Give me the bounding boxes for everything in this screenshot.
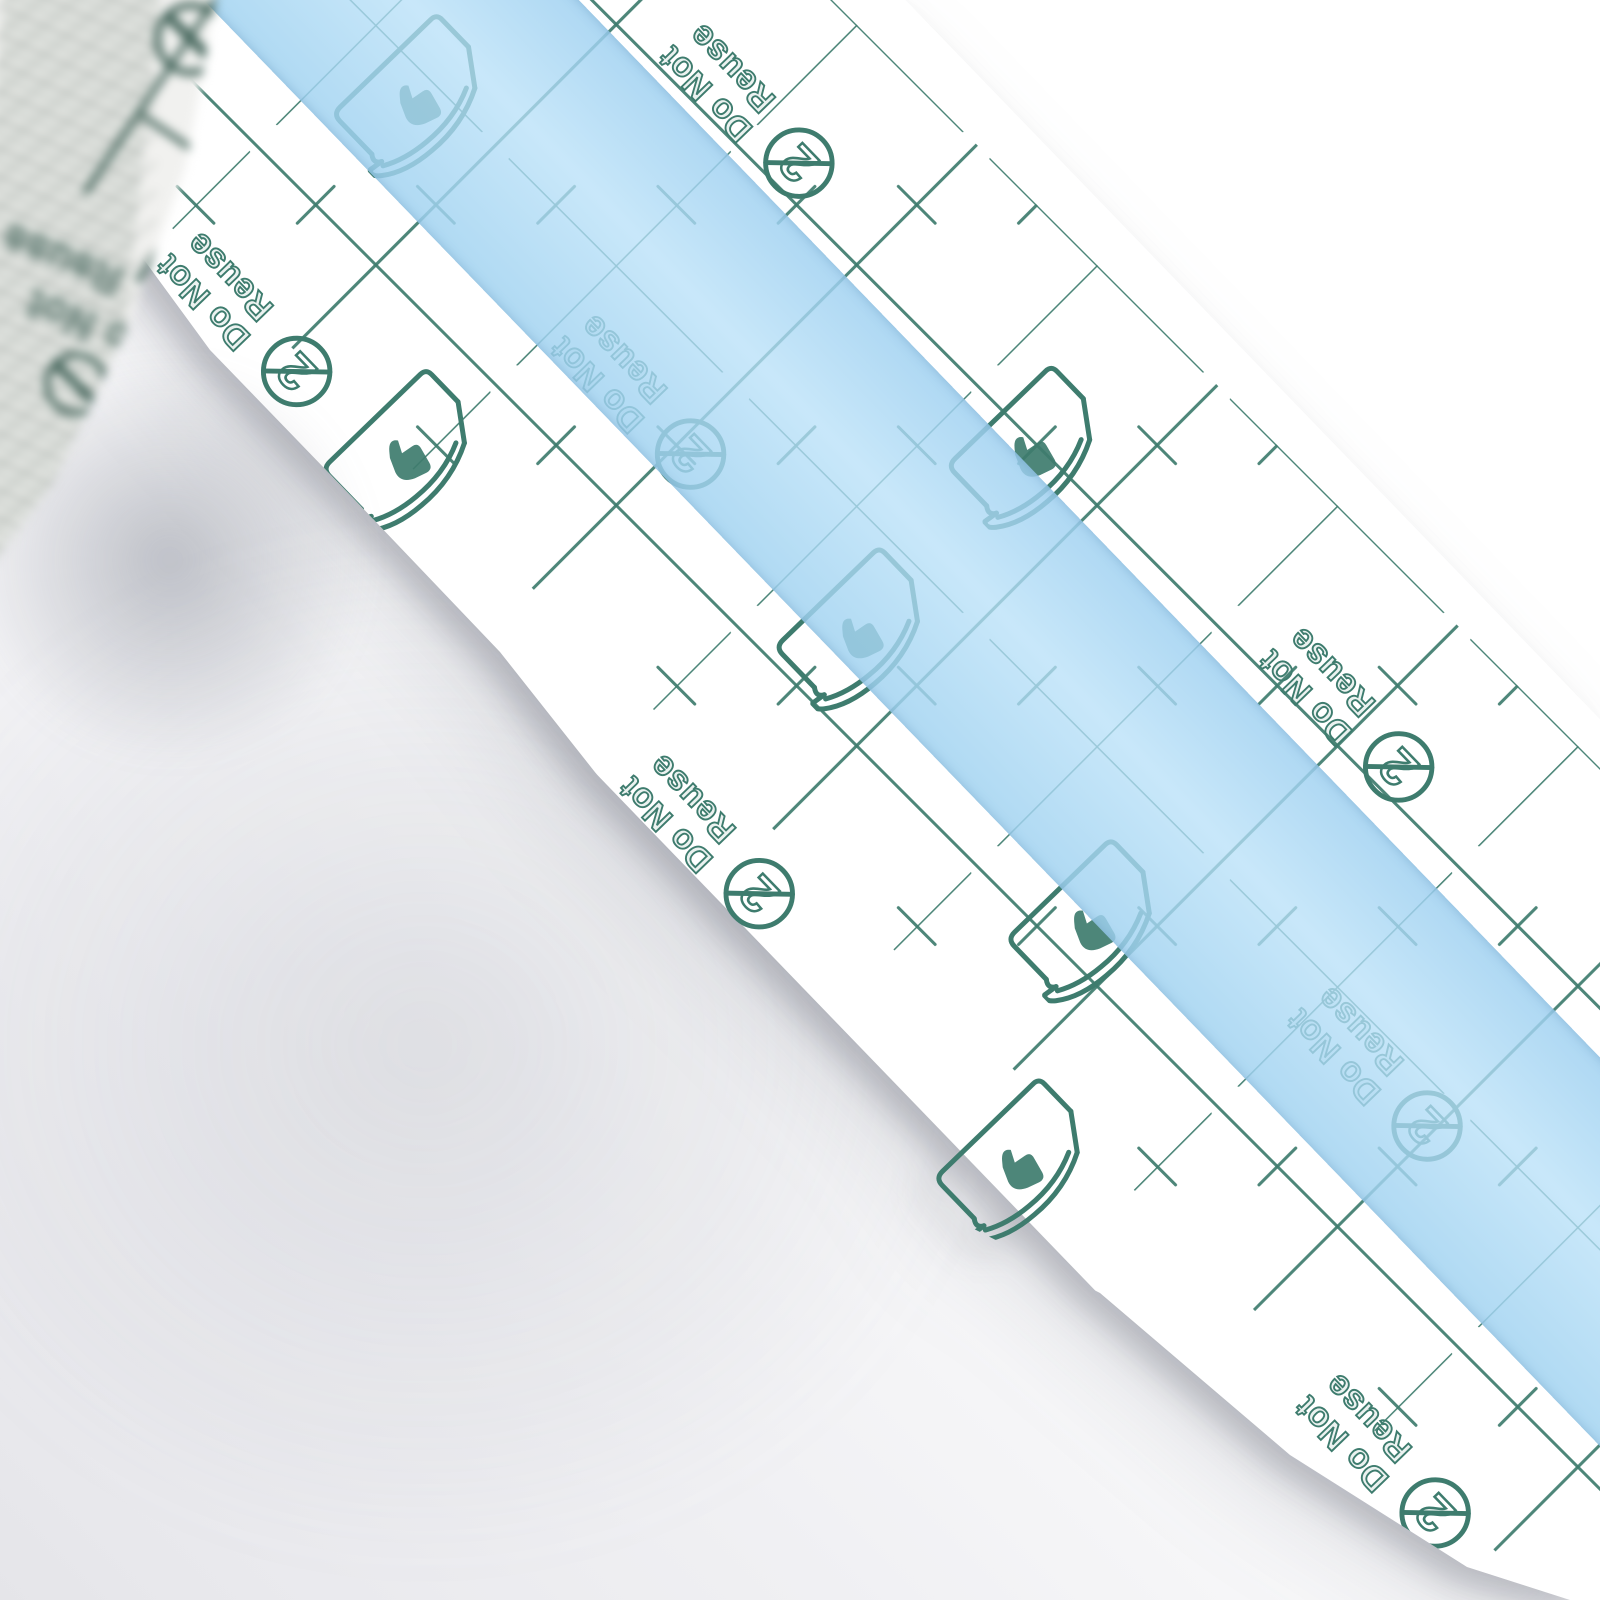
roll-no-reuse-symbol-blur — [44, 352, 108, 416]
tape-roll-body: Reuse Do Not — [0, 0, 286, 786]
warning-text: Do Not Reuse — [612, 743, 747, 879]
product-photo: 2 Do Not Reuse 2 Do Not Reuse 2 Do Not R… — [0, 0, 1600, 1600]
peel-liner-icon-glyph — [909, 1051, 1125, 1266]
do-not-reuse-stamp: 2 Do Not Reuse — [1260, 1335, 1520, 1598]
do-not-reuse-stamp: 2 Do Not Reuse — [584, 715, 844, 978]
tape-roll: Reuse Do Not — [0, 0, 286, 786]
peel-liner-icon — [909, 1051, 1125, 1266]
roll-no-reuse-symbol-blur — [154, 2, 228, 76]
roll-print-smudge — [122, 448, 153, 474]
warning-text: Do Not Reuse — [1288, 1362, 1423, 1498]
